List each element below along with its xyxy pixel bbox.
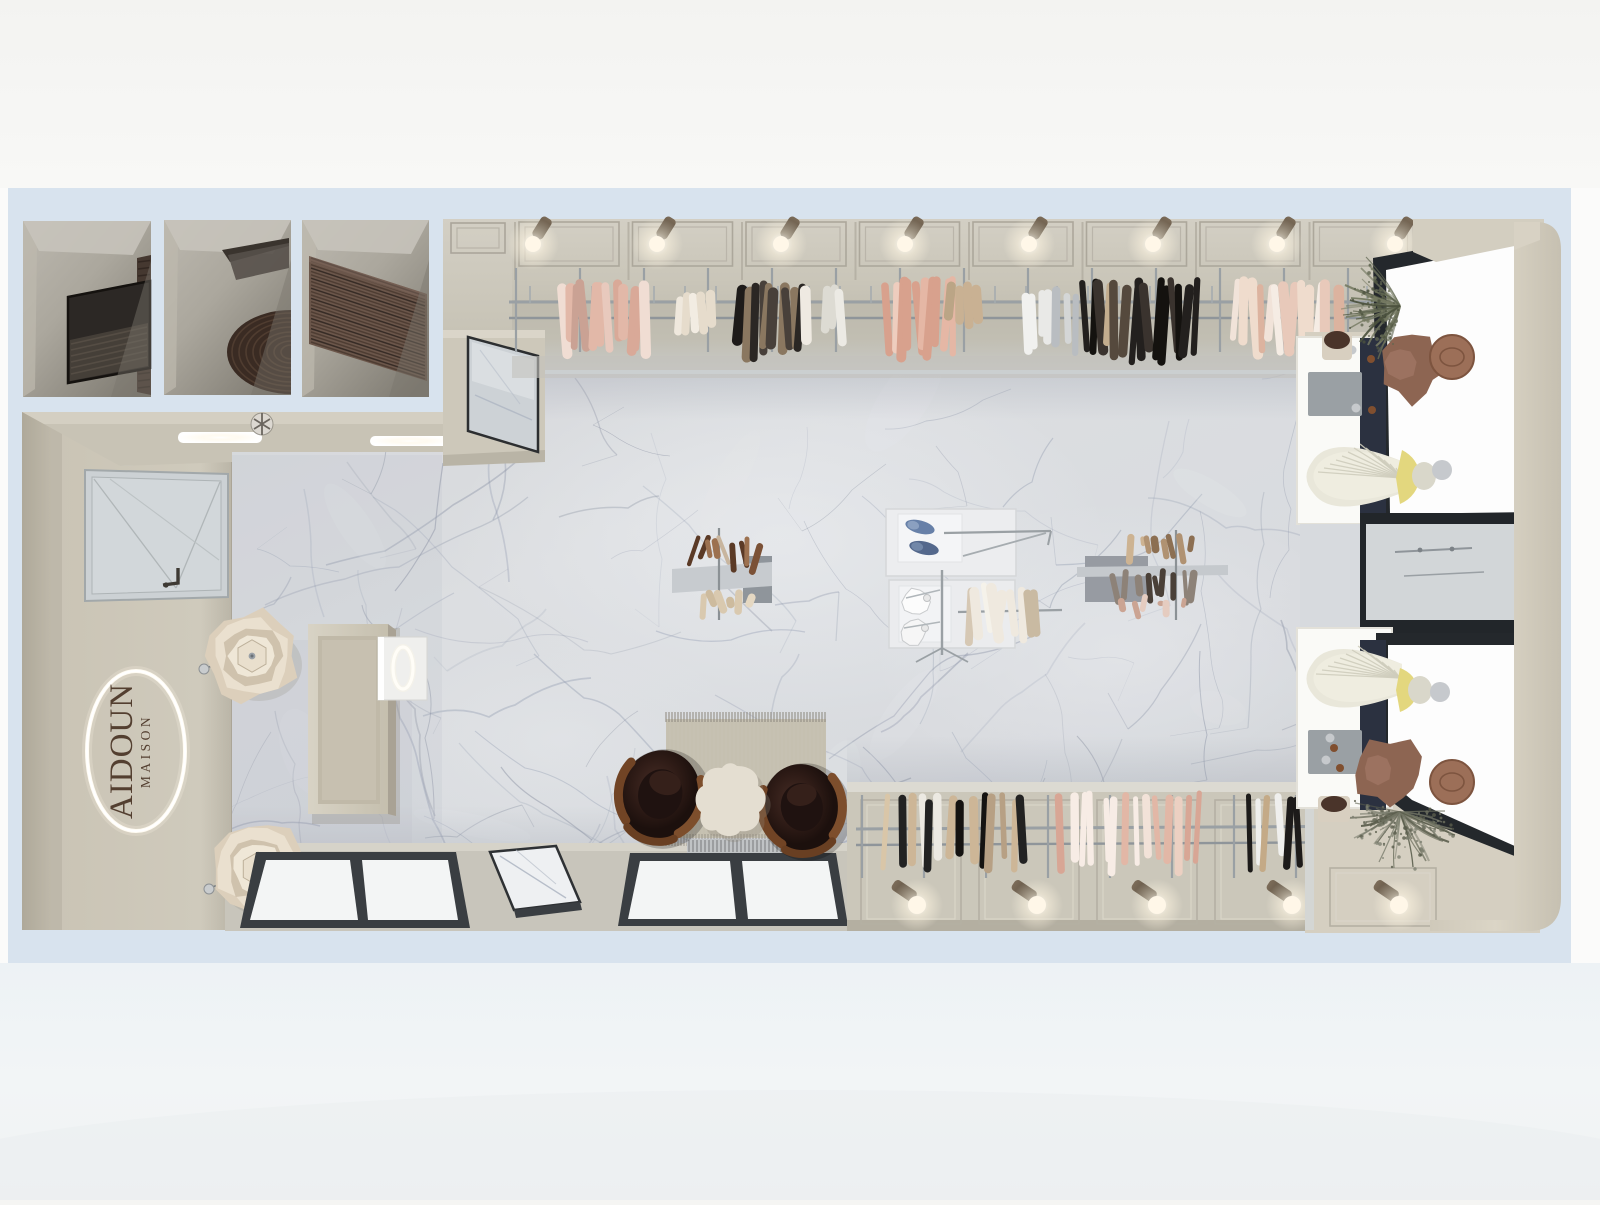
svg-text:AIDOUN: AIDOUN [104, 683, 140, 819]
svg-text:MAISON: MAISON [138, 714, 153, 788]
